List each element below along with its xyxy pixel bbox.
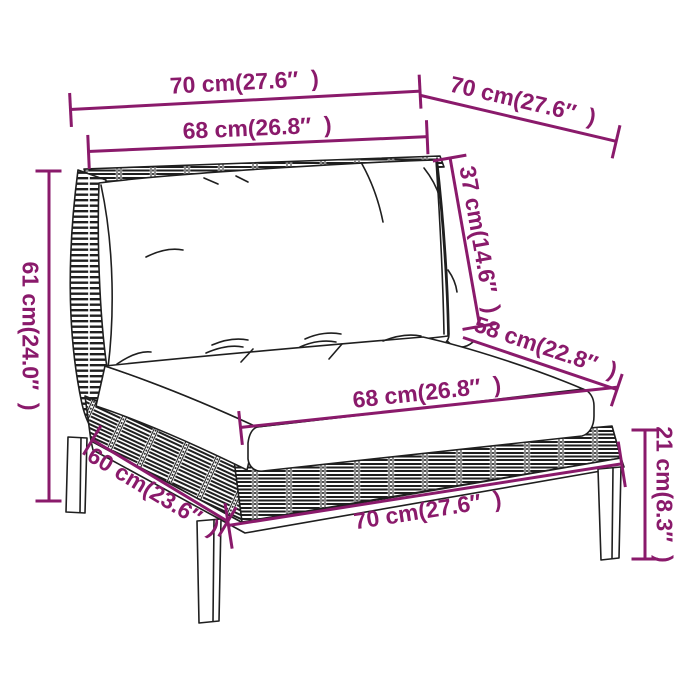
- dim-label-seat-height: 21 cm(8.3″ ): [652, 426, 677, 562]
- dim-tick: [36, 500, 62, 503]
- dim-total-height: 61 cm(24.0″ ): [48, 171, 51, 502]
- dim-tick: [36, 170, 62, 173]
- leg-back-left: [66, 437, 87, 513]
- back-cushion: [98, 160, 457, 368]
- leg-front-right: [598, 467, 621, 560]
- dim-label-total-height: 61 cm(24.0″ ): [17, 261, 42, 410]
- dim-seat-height: 21 cm(8.3″ ): [644, 430, 647, 560]
- product-dimension-diagram: 70 cm(27.6″ ) 70 cm(27.6″ ) 68 cm(26.8″ …: [0, 0, 700, 700]
